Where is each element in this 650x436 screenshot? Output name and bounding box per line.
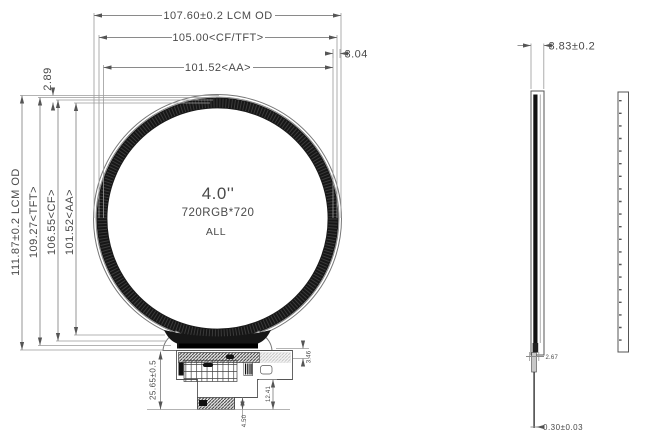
dim-fpc-thickness-label: 0.30±0.03	[543, 423, 583, 432]
side-bottom-step	[533, 343, 539, 353]
driver-ic-bar	[179, 344, 258, 349]
grid-component	[203, 363, 213, 367]
component-chip	[226, 355, 234, 360]
barcode-stripe	[247, 364, 248, 375]
dim-height-aa-label: 101.52<AA>	[64, 189, 76, 255]
dim-fpc-length-label: 25.65±0.5	[149, 360, 158, 400]
dim-left-gap-label: 2.89	[42, 67, 54, 90]
dim-thickness-label: 3.83±0.2	[549, 41, 596, 53]
dim-width-aa-label: 101.52<AA>	[185, 62, 251, 74]
dim-tail-label: 12.41	[266, 386, 272, 402]
barcode	[244, 363, 253, 376]
fpc-strip-right	[260, 353, 291, 363]
alignment-feature	[261, 366, 273, 375]
film-profile-body	[618, 92, 629, 352]
dim-tab-label: 3.46	[307, 350, 313, 363]
display-size-label: 4.0''	[202, 184, 235, 203]
barcode-stripe	[251, 364, 252, 375]
dim-step-label: 2.67	[546, 355, 559, 361]
side-lcd-stack	[533, 95, 537, 344]
dim-height-od-label: 111.87±0.2 LCM OD	[10, 168, 22, 276]
connector-key	[199, 400, 207, 406]
front-view: 4.0'' 720RGB*720 ALL	[94, 95, 342, 410]
barcode-stripe	[249, 364, 250, 375]
side-view: 3.83±0.2 2.67 0.30±0.03	[518, 41, 596, 433]
dim-width-cftft-label: 105.00<CF/TFT>	[172, 32, 263, 44]
fpc-left-pad	[179, 363, 184, 376]
dim-connector-label: 4.50	[242, 414, 248, 427]
lcm-outline-drawing: 4.0'' 720RGB*720 ALL 107.60±0.2 LCM OD 1…	[0, 0, 650, 436]
dim-height-cf-label: 106.55<CF>	[46, 189, 58, 255]
note-label: ALL	[206, 226, 226, 238]
side-fpc-line	[533, 372, 534, 428]
resolution-label: 720RGB*720	[182, 207, 255, 219]
side-tail-block	[532, 353, 537, 373]
dim-width-od-label: 107.60±0.2 LCM OD	[163, 10, 272, 22]
barcode-stripe	[245, 364, 246, 375]
dim-right-gap-label: 3.04	[345, 49, 368, 61]
dim-height-tft-label: 109.27<TFT>	[28, 186, 40, 258]
drawing-sheet: 4.0'' 720RGB*720 ALL 107.60±0.2 LCM OD 1…	[0, 0, 650, 436]
film-profile	[618, 92, 629, 352]
